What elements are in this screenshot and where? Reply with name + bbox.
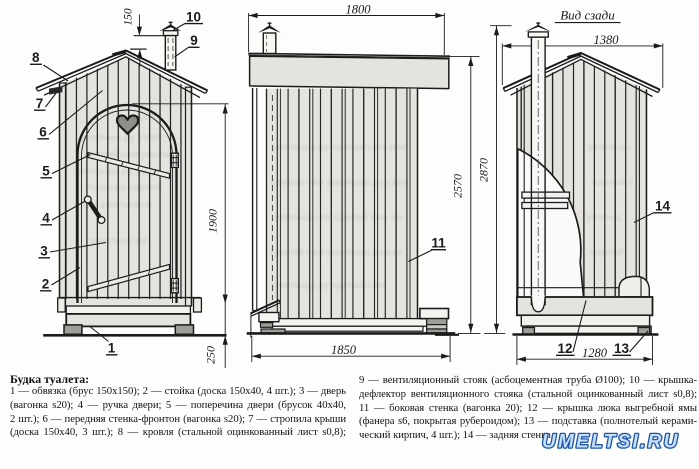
svg-text:9: 9 [190,33,198,48]
svg-text:1900: 1900 [206,209,220,233]
svg-text:3: 3 [40,244,48,259]
svg-text:1: 1 [108,341,116,356]
svg-text:250: 250 [204,346,218,364]
svg-text:умельцы.ру умел: умельцы.ру умел [78,132,161,143]
svg-text:сделай с: сделай с [592,177,634,188]
svg-text:сам умельцы.р: сам умельцы.р [80,199,152,210]
svg-text:умельцы: умельцы [588,142,631,153]
svg-text:7: 7 [36,96,44,111]
svg-text:11: 11 [431,235,446,250]
svg-text:Вид сзади: Вид сзади [560,8,615,23]
svg-text:13: 13 [614,341,630,356]
svg-text:умельцы.ру умел: умельцы.ру умел [76,166,159,177]
svg-text:сделай сам умельцы.ру сде: сделай сам умельцы.ру сде [270,247,403,258]
svg-text:6: 6 [39,125,47,140]
svg-text:сделай: сделай [590,247,624,258]
svg-text:14: 14 [655,199,671,214]
svg-text:умельц: умельц [586,212,621,223]
svg-text:льцы.ру сделай: льцы.ру сделай [86,182,162,193]
svg-text:8: 8 [32,50,40,65]
svg-text:умельцы.ру сделай сам уме: умельцы.ру сделай сам уме [272,142,406,153]
svg-text:2570: 2570 [451,174,465,198]
svg-text:1380: 1380 [594,33,620,47]
svg-text:12: 12 [557,341,572,356]
svg-text:умельцы.ру: умельцы.ру [90,235,148,246]
svg-text:2870: 2870 [477,158,491,182]
svg-text:150: 150 [123,8,135,26]
svg-text:умельцы.ру сделай сам ум: умельцы.ру сделай сам ум [274,212,402,223]
svg-text:1280: 1280 [582,346,608,360]
svg-text:сделай сам умельцы.ру сдел: сделай сам умельцы.ру сдел [270,177,409,188]
svg-text:10: 10 [186,10,201,25]
svg-text:1850: 1850 [331,343,357,357]
svg-text:ру сдел: ру сдел [118,112,154,123]
svg-text:1800: 1800 [346,3,372,17]
svg-text:4: 4 [42,211,50,226]
svg-text:сделай сам умель: сделай сам умель [84,149,170,160]
svg-text:2: 2 [42,277,50,292]
svg-text:5: 5 [42,164,50,179]
svg-text:умельцы.ру сделай сам: умельцы.ру сделай сам [272,280,386,291]
